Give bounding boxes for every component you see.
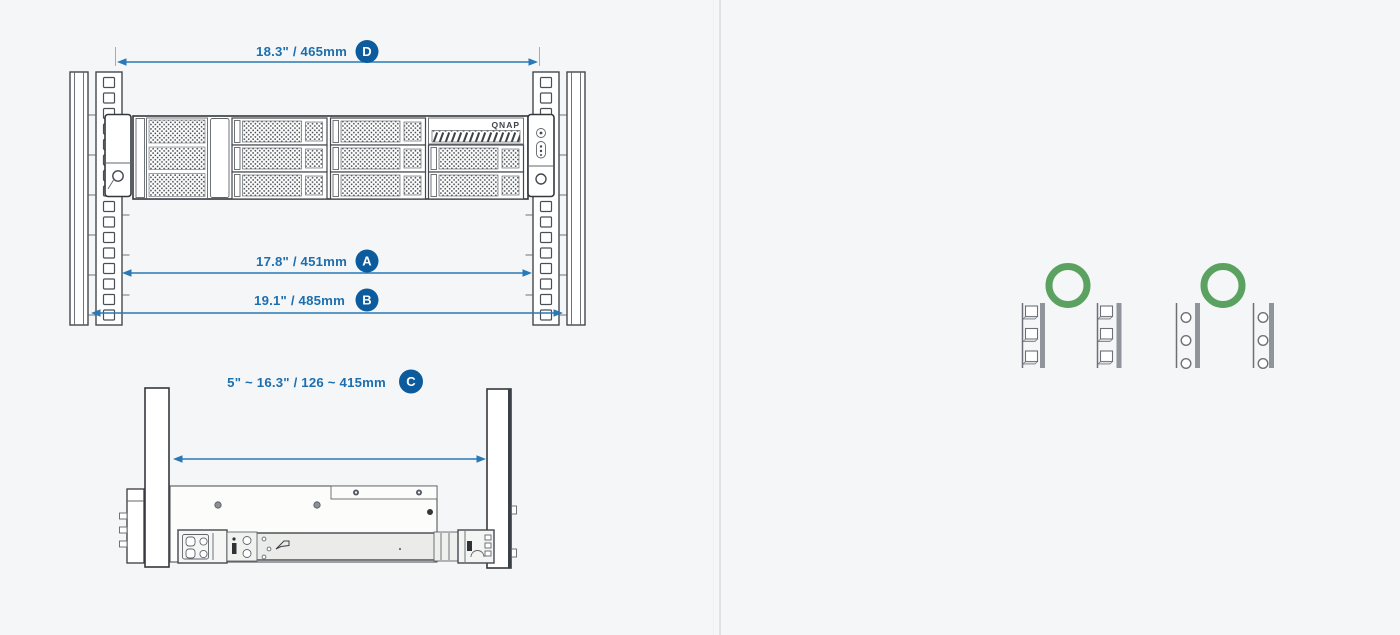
dimension-d-badge-letter: D [362, 44, 371, 59]
panel-divider [713, 0, 714, 635]
dimension-d: 18.3" / 465mm D [116, 40, 540, 66]
nas-vent-panel [147, 118, 208, 199]
compatible-ring-icon [1049, 267, 1087, 305]
hatch-vent-strip [432, 131, 520, 143]
dimension-diagrams-panel: QNAP [0, 0, 713, 635]
dimension-c-label: 5" ~ 16.3" / 126 ~ 415mm [227, 375, 386, 390]
drive-tray [331, 172, 426, 199]
dimension-a: 17.8" / 451mm A [122, 250, 532, 277]
drive-tray [232, 145, 327, 172]
drive-tray [331, 118, 426, 145]
slide-rail-latch-plate [227, 532, 257, 561]
drive-tray [429, 172, 524, 199]
square-hole-rack-posts [1023, 267, 1122, 369]
drive-tray [232, 118, 327, 145]
screw [215, 502, 221, 508]
round-holes-right [1258, 313, 1268, 369]
dimension-a-badge-letter: A [362, 254, 372, 269]
screw [427, 509, 433, 515]
nas-blank-strip [211, 119, 230, 198]
side-view-post-left [145, 388, 169, 567]
screw [314, 502, 320, 508]
drive-tray [429, 145, 524, 172]
rail-side-view: 5" ~ 16.3" / 126 ~ 415mm C [120, 370, 517, 569]
brand-logo: QNAP [491, 120, 520, 130]
dimension-b-label: 19.1" / 485mm [254, 293, 345, 308]
nas-trim-strip-left [136, 119, 145, 198]
rack-compatibility-illustrations [720, 0, 1400, 635]
drive-tray [331, 145, 426, 172]
rail-front-bracket [120, 489, 145, 563]
nas-brand-panel: QNAP [429, 118, 524, 144]
rack-post-right [526, 72, 586, 325]
dimension-b: 19.1" / 485mm B [91, 289, 563, 317]
slide-rail [178, 530, 494, 563]
page-root: QNAP [0, 0, 1400, 635]
dimension-b-badge-letter: B [362, 293, 371, 308]
nas-right-ear [528, 115, 554, 197]
dimension-a-label: 17.8" / 451mm [256, 254, 347, 269]
rack-front-view: QNAP [70, 40, 585, 325]
compatible-ring-icon [1204, 267, 1242, 305]
rack-compatibility-panel [720, 0, 1400, 635]
nas-left-ear [105, 115, 131, 197]
dimension-c-badge-letter: C [406, 374, 416, 389]
square-holes-right [1098, 306, 1113, 364]
rack-post-left [70, 72, 130, 325]
slide-rail-left-block [178, 530, 227, 563]
square-holes-left [1023, 306, 1038, 364]
dimension-d-label: 18.3" / 465mm [256, 44, 347, 59]
round-hole-rack-posts [1177, 267, 1275, 369]
round-holes-left [1181, 313, 1191, 369]
front-and-side-view-diagram: QNAP [0, 0, 713, 635]
drive-tray [232, 172, 327, 199]
dimension-c: 5" ~ 16.3" / 126 ~ 415mm C [173, 370, 486, 463]
slide-rail-right-block [434, 530, 494, 563]
nas-unit-front: QNAP [105, 115, 554, 200]
